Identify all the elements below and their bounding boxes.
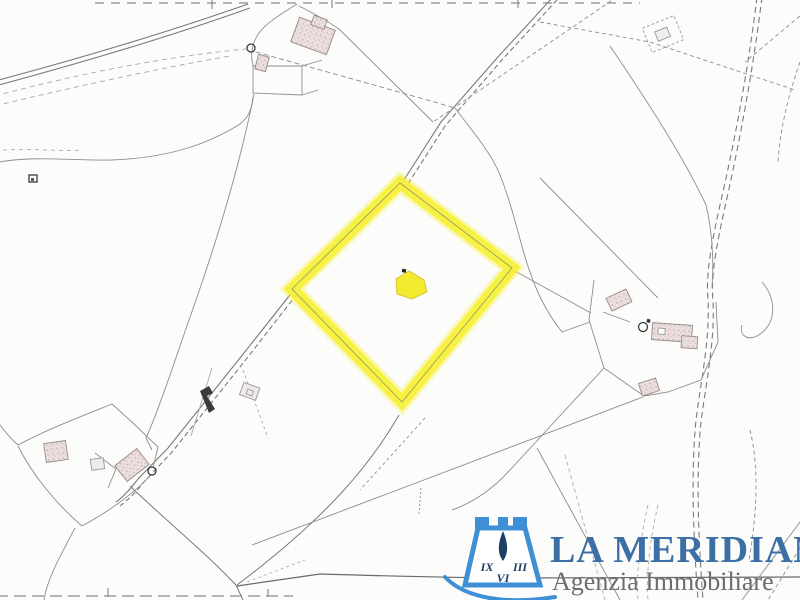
boundary-line — [146, 94, 254, 450]
road-line — [406, 0, 557, 187]
building — [44, 441, 68, 463]
map-sheet-borders — [0, 0, 640, 597]
merlon — [498, 517, 508, 529]
parcel-center-building-mark — [402, 269, 407, 273]
boundary-line — [243, 370, 268, 438]
enclosure-line — [0, 404, 112, 445]
highlighted-parcel — [292, 183, 512, 402]
road-line — [693, 0, 757, 600]
boundary-line — [513, 270, 591, 313]
boundary-line — [741, 282, 772, 338]
boundary-line — [745, 16, 800, 62]
building — [642, 16, 683, 53]
enclosure-line — [44, 528, 75, 600]
numeral-nine: IX — [480, 560, 495, 574]
building — [239, 382, 259, 400]
map-boundaries — [0, 0, 800, 600]
track-line — [130, 486, 236, 585]
boundary-line — [419, 488, 421, 514]
enclosure-line — [603, 312, 630, 322]
road-line — [0, 4, 248, 81]
road-line — [0, 8, 250, 86]
track-line — [237, 415, 399, 585]
boundary-line — [433, 0, 617, 122]
boundary-line — [0, 49, 246, 96]
brand-tagline: Agenzia Immobiliare — [552, 567, 774, 596]
merlon — [475, 517, 489, 529]
marker-square-dot — [31, 178, 34, 181]
boundary-line — [0, 56, 230, 106]
small-dark-mark — [646, 319, 650, 323]
enclosure-line — [82, 475, 151, 526]
road-line — [698, 0, 762, 600]
boundary-line — [360, 418, 425, 490]
numeral-three: III — [512, 560, 528, 574]
enclosure-line — [252, 4, 302, 95]
building — [90, 458, 104, 471]
castle-merlons — [475, 517, 527, 529]
boundary-line — [0, 97, 253, 163]
agency-logo: IX III VI LA MERIDIANA Agenzia Immobilia… — [445, 517, 800, 600]
building — [651, 323, 698, 349]
building — [291, 11, 338, 55]
boundary-line — [256, 52, 455, 108]
well-symbol — [247, 44, 255, 52]
track-line — [236, 585, 243, 600]
cadastral-map-svg: IX III VI LA MERIDIANA Agenzia Immobilia… — [0, 0, 800, 600]
boundary-line — [610, 46, 713, 288]
building — [115, 449, 149, 482]
boundary-line — [452, 368, 604, 510]
parcel-center-building — [396, 271, 427, 299]
sundial-logo-icon: IX III VI — [465, 517, 540, 585]
numeral-six: VI — [497, 571, 511, 585]
boundary-line — [540, 178, 658, 298]
map-roads — [0, 0, 800, 600]
map-symbols — [29, 44, 651, 475]
merlon — [513, 517, 527, 529]
boundary-line — [340, 30, 433, 122]
well-symbol — [639, 323, 648, 332]
boundary-line — [252, 397, 643, 545]
building — [255, 54, 270, 71]
map-buildings — [44, 11, 699, 482]
boundary-line — [778, 62, 800, 162]
building — [638, 378, 659, 396]
building — [606, 289, 632, 311]
enclosure-line — [302, 60, 322, 66]
brand-name: LA MERIDIANA — [550, 529, 800, 571]
boundary-line — [455, 108, 590, 332]
enclosure-line — [302, 90, 318, 95]
cadastral-map-image: IX III VI LA MERIDIANA Agenzia Immobilia… — [0, 0, 800, 600]
boundary-line — [0, 149, 82, 151]
